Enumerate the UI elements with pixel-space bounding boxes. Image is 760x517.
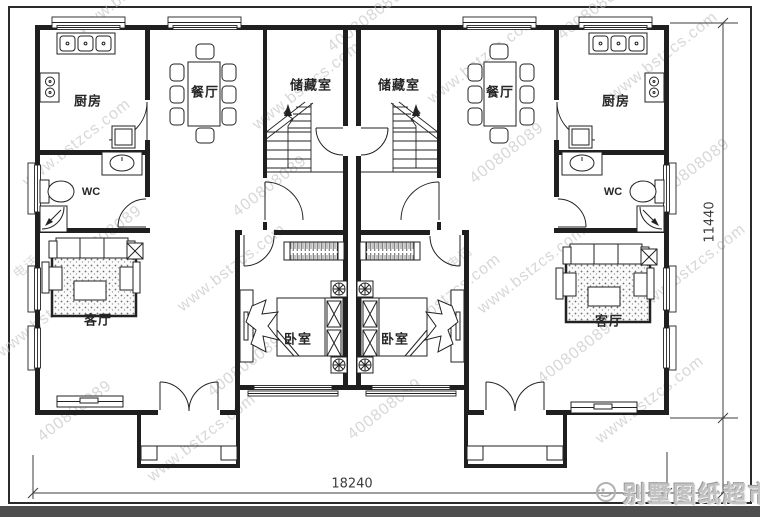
room-label-kitchen-left: 厨房 [74,91,102,110]
room-label-bedroom-right: 卧室 [381,329,409,348]
staircase [265,102,343,172]
room-label-living-right: 客厅 [595,311,623,330]
brand-logo-text: 别墅图纸超市 [623,475,760,509]
brand-logo: 别墅图纸超市 [594,475,760,509]
room-label-dining-right: 餐厅 [486,82,514,101]
room-label-kitchen-right: 厨房 [602,91,630,110]
room-label-wc-right: WC [604,186,622,198]
room-label-storage-left: 储藏室 [290,75,332,94]
room-label-bedroom-left: 卧室 [284,329,312,348]
bedroom-furniture [240,242,347,373]
dimension-height: 11440 [703,201,718,242]
room-label-storage-right: 储藏室 [378,75,420,94]
room-label-living-left: 客厅 [84,310,112,329]
dimension-width: 18240 [331,477,372,492]
room-label-wc-left: WC [82,186,100,198]
floorplan-page: www.bstzcs.com 400808089 www.bstzcs.com … [0,0,760,517]
brand-logo-icon [594,480,618,504]
entry-porch [141,446,237,460]
party-wall-seam [348,25,356,390]
room-label-dining-left: 餐厅 [191,82,219,101]
